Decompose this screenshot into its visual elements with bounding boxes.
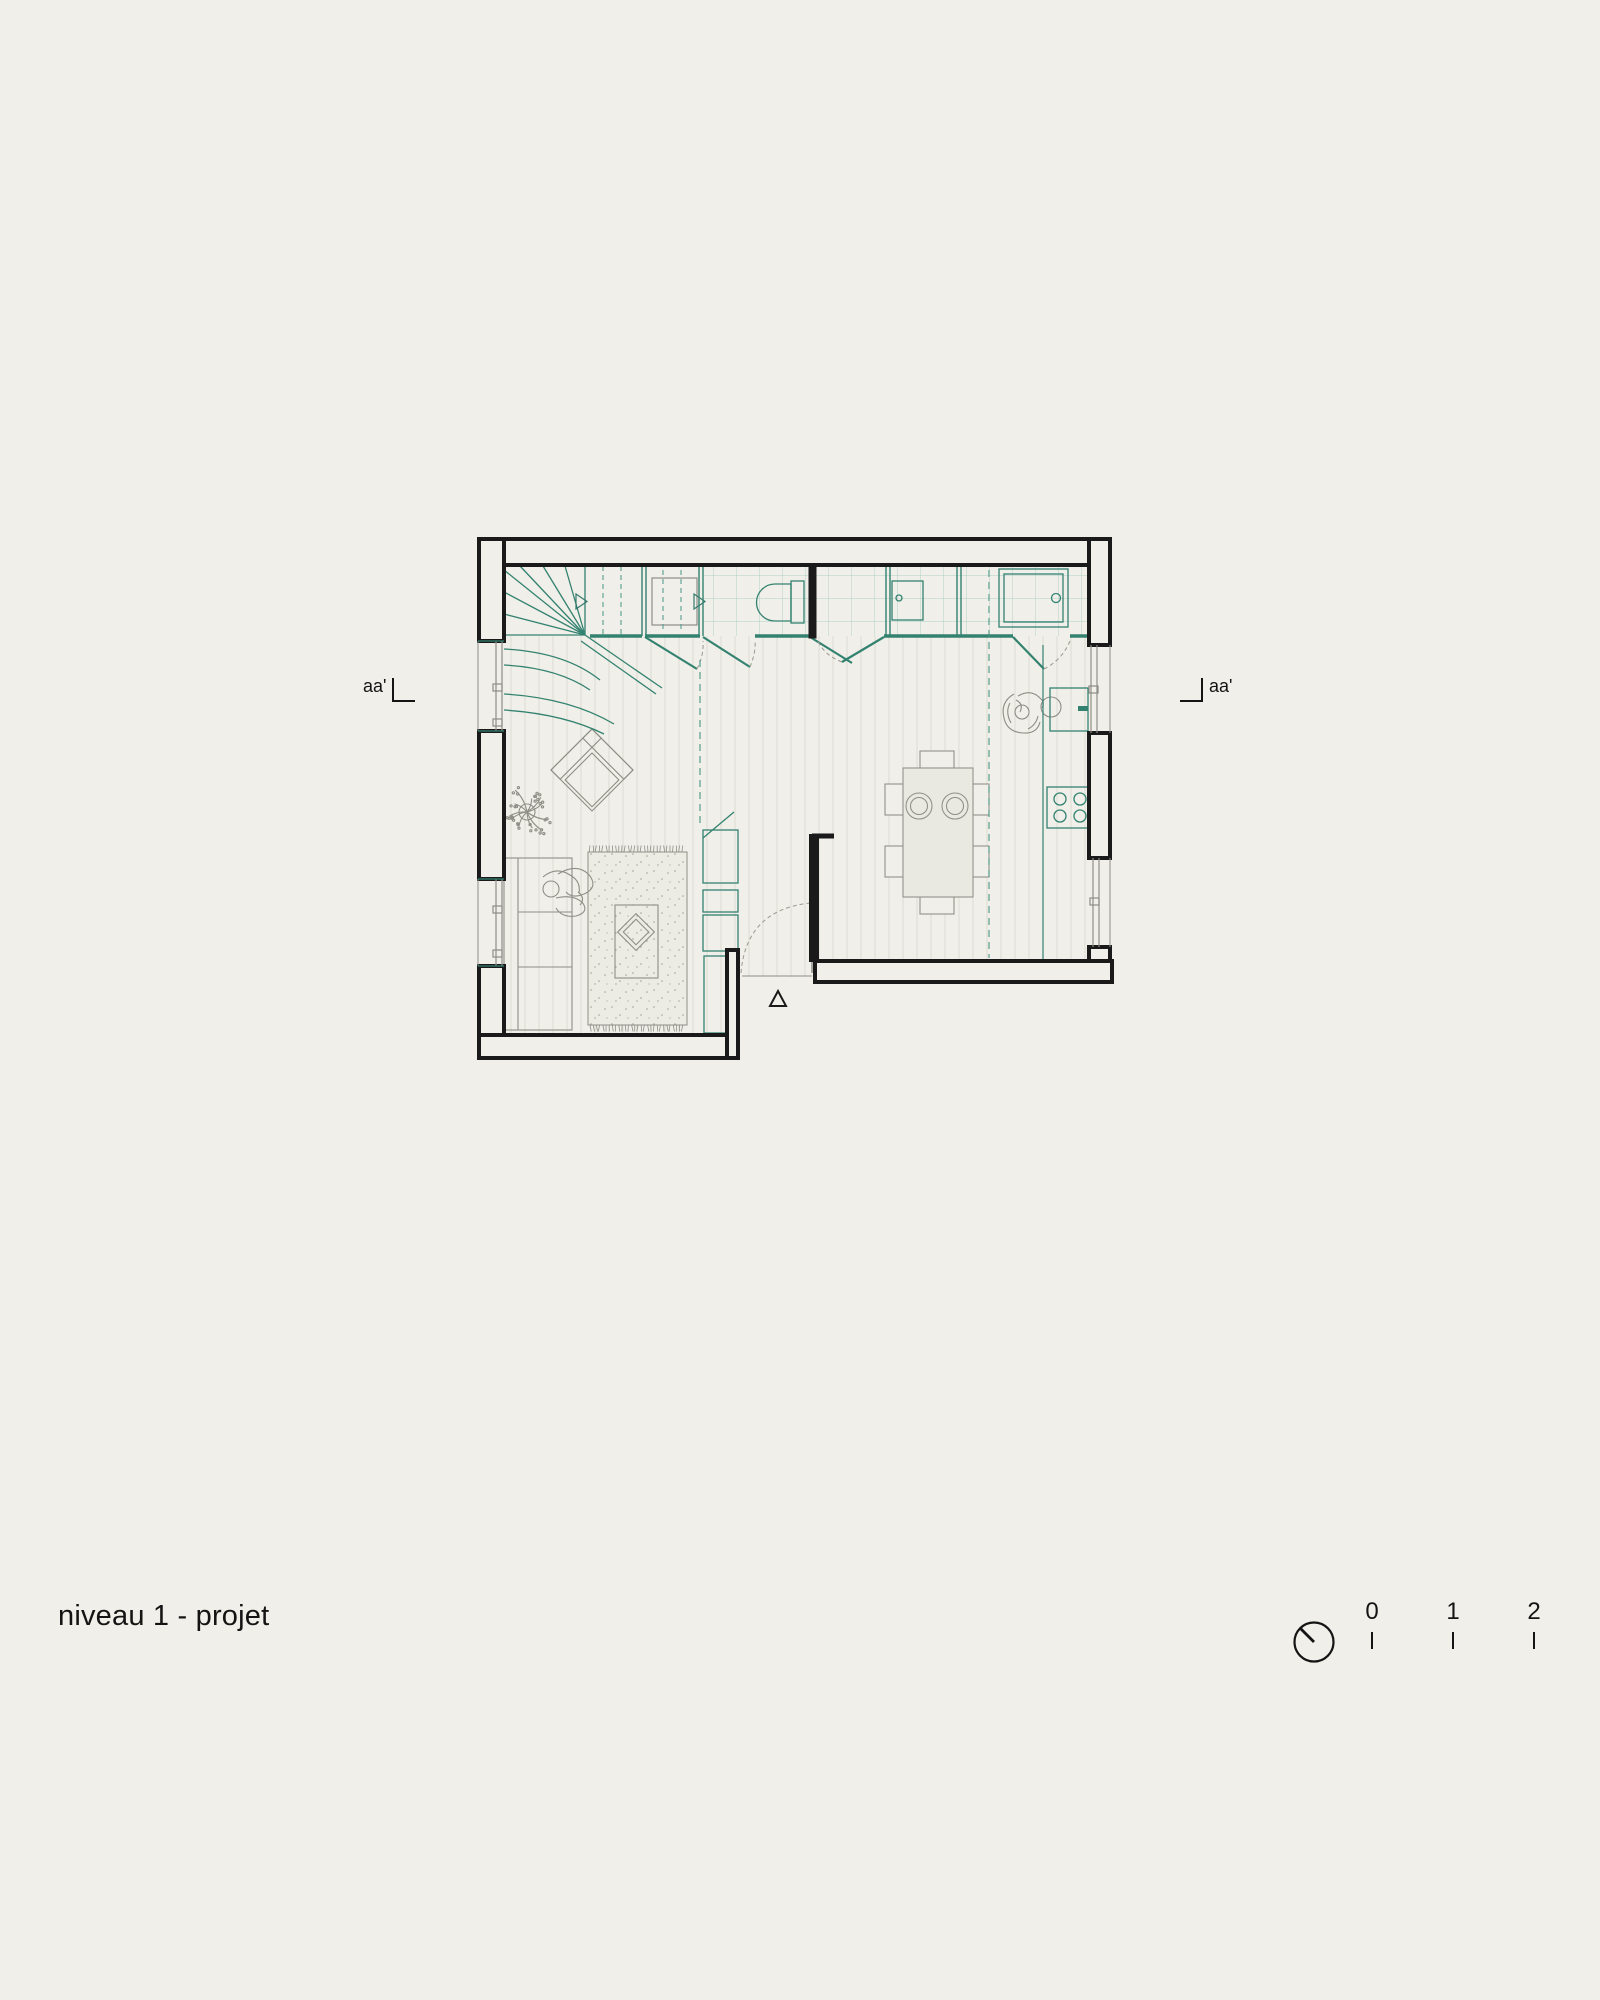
window-left-lower [478, 879, 504, 966]
wall-right-upper [1089, 539, 1110, 645]
stair-fan [504, 566, 585, 635]
chair [885, 784, 904, 815]
wall-left-mid [479, 731, 504, 879]
faucet [1078, 706, 1088, 711]
tile-floor-bath [816, 566, 1090, 636]
washing-machine [652, 578, 697, 625]
scale-mark-0: 0 [1352, 1598, 1392, 1649]
chair [885, 846, 904, 877]
scale-bar: 0 1 2 [1292, 1598, 1562, 1668]
chair [920, 896, 954, 914]
window-right-upper [1089, 645, 1110, 733]
scale-mark-1: 1 [1433, 1598, 1473, 1649]
window-right-lower [1090, 858, 1110, 947]
section-label-left: aa' [363, 676, 386, 697]
chair [920, 751, 954, 769]
wall-right-mid [1089, 733, 1110, 858]
scale-tick [1452, 1632, 1455, 1649]
wall-left-upper [479, 539, 504, 641]
wall-top [479, 539, 1110, 565]
wall-bottom-right [815, 961, 1112, 982]
north-icon [1292, 1620, 1336, 1664]
wall-entry-right [810, 835, 818, 961]
section-cut-icon [1180, 678, 1203, 702]
scale-tick [1533, 1632, 1536, 1649]
wall-entry-left [727, 950, 738, 1058]
window-left-upper [478, 641, 504, 731]
wall-bottom-left [479, 1035, 738, 1058]
dining-table [903, 768, 973, 897]
section-label-right: aa' [1209, 676, 1232, 697]
scale-tick [1371, 1632, 1374, 1649]
rug [588, 846, 687, 1032]
wall-wc-partition [809, 566, 816, 638]
floor-plan [0, 0, 1600, 2000]
drawing-title: niveau 1 - projet [58, 1600, 269, 1633]
section-marker-left: aa' [363, 676, 415, 702]
scale-mark-2: 2 [1514, 1598, 1554, 1649]
sheet: niveau 1 - projet aa' aa' 0 1 2 [0, 0, 1600, 2000]
section-cut-icon [392, 678, 415, 702]
section-marker-right: aa' [1180, 676, 1232, 702]
entrance-arrow [770, 991, 786, 1006]
